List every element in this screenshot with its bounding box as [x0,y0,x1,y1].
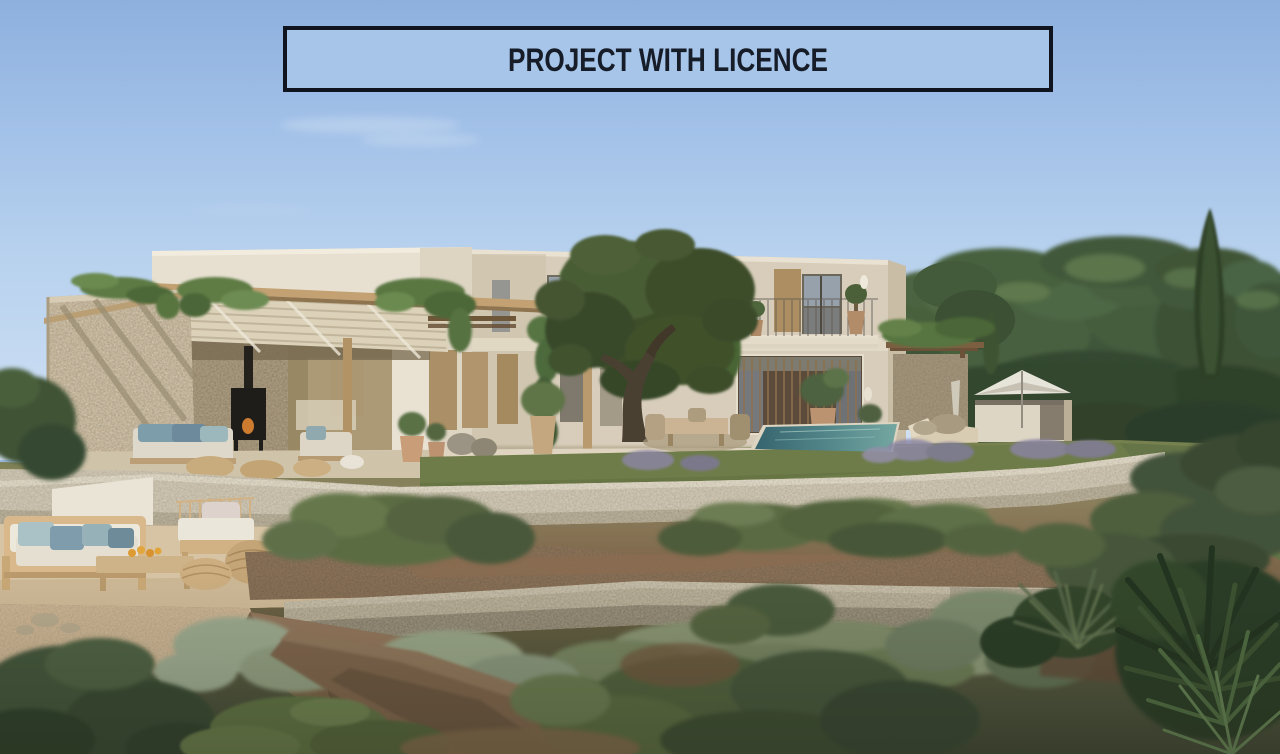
svg-text:PROJECT WITH LICENCE: PROJECT WITH LICENCE [508,42,828,78]
